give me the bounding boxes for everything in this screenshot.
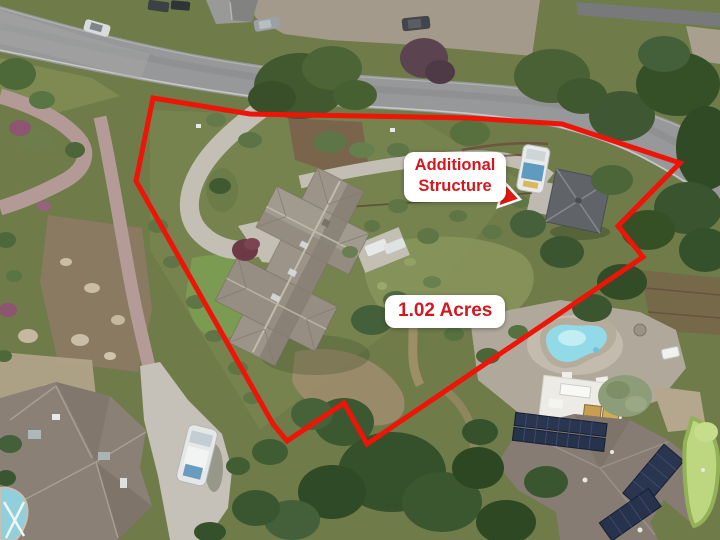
additional-structure-label: Additional Structure bbox=[404, 152, 506, 202]
acreage-label: 1.02 Acres bbox=[385, 295, 505, 328]
aerial-property-photo: Additional Structure 1.02 Acres bbox=[0, 0, 720, 540]
aerial-scene bbox=[0, 0, 720, 540]
additional-structure-label-line1: Additional bbox=[404, 155, 506, 176]
olive-tree bbox=[598, 375, 652, 417]
additional-structure-label-line2: Structure bbox=[404, 176, 506, 197]
